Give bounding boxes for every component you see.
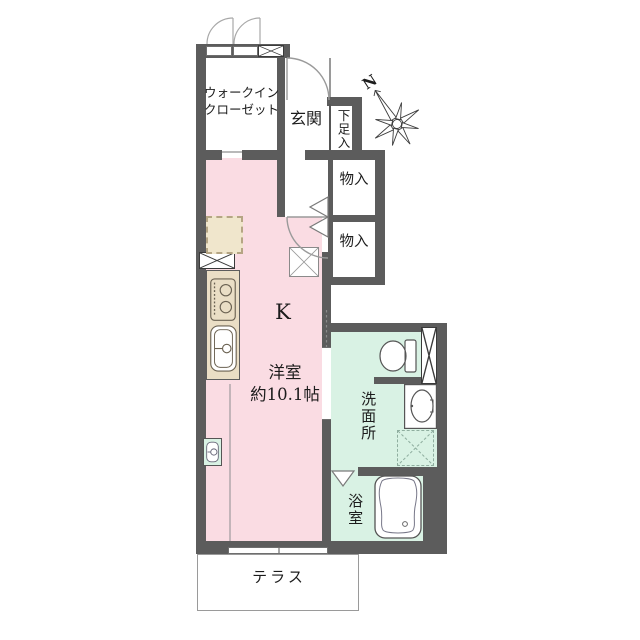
wic-window-2 <box>233 46 258 56</box>
kitchen-zone-divider <box>229 384 231 547</box>
x-mark-icon <box>290 248 318 276</box>
shaft-box-room-door <box>289 247 319 277</box>
shoebox-left-edge <box>329 104 331 152</box>
wall-wic-bottom-a <box>196 150 222 160</box>
wic-window-1 <box>206 46 232 56</box>
storage-lower-label: 物入 <box>333 232 375 254</box>
heater-icon <box>204 439 221 465</box>
refrigerator-space <box>206 216 243 254</box>
x-mark-icon <box>200 253 234 268</box>
x-mark-icon <box>422 328 436 383</box>
bathroom-label: 浴室 <box>345 485 365 535</box>
genkan-door-jamb <box>329 58 331 99</box>
x-mark-icon <box>398 431 433 465</box>
walk-in-closet-label-line2: クローゼット <box>204 102 279 119</box>
kitchen-label: K <box>267 298 299 326</box>
water-heater-unit <box>203 438 222 466</box>
wall-sanitary-right-upper <box>437 323 447 473</box>
wall-storage-middle <box>330 215 375 222</box>
wall-wic-bottom-b <box>242 150 285 160</box>
shaft-box-top <box>258 45 284 57</box>
main-room-label-line2: 約10.1帖 <box>250 384 320 406</box>
wall-storage-right <box>375 150 385 285</box>
pipe-shaft-toilet <box>421 327 437 384</box>
compass-north-label: N <box>359 71 381 94</box>
terrace-window <box>228 547 328 554</box>
washing-machine-space <box>397 430 434 466</box>
toilet <box>379 338 419 374</box>
window-swing-icon <box>207 18 260 44</box>
main-room-label-line1: 洋室 <box>269 362 302 384</box>
walk-in-closet-label-line1: ウォークイン <box>204 85 279 102</box>
basin-icon <box>404 384 437 429</box>
bathtub <box>374 475 422 539</box>
bathtub-icon <box>374 475 422 539</box>
walk-in-closet-label: ウォークイン クローゼット <box>204 76 279 128</box>
main-room-label: 洋室 約10.1帖 <box>230 360 340 408</box>
x-mark-icon <box>259 46 283 56</box>
shoe-storage-label: 下足入 <box>333 101 351 157</box>
floor-plan: N ウォークイン クローゼット 玄関 下足入 物入 物入 K 洋室 約10.1帖… <box>0 0 640 640</box>
storage-upper-label: 物入 <box>333 170 375 192</box>
entrance-door-swing-icon <box>287 58 329 100</box>
wash-basin <box>404 384 437 429</box>
toilet-icon <box>379 338 419 374</box>
shaft-box-kitchen <box>199 252 235 269</box>
wall-toilet-alcove <box>374 377 424 384</box>
wic-opening-threshold <box>222 151 242 153</box>
entrance-label: 玄関 <box>284 107 328 131</box>
terrace-label: テラス <box>247 566 311 588</box>
wall-storage-bottom <box>328 277 385 285</box>
washroom-label: 洗面所 <box>358 382 378 450</box>
